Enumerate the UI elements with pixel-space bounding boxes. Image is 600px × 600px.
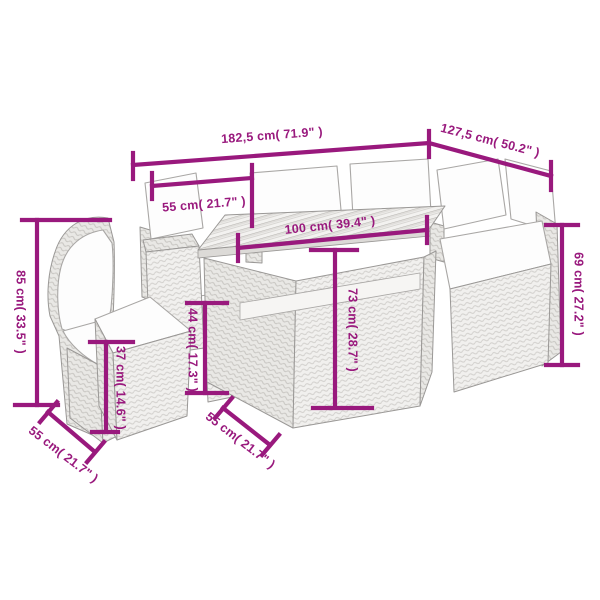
product-dimension-diagram: 182,5 cm( 71.9" ) 127,5 cm( 50.2" ) 55 c…	[0, 0, 600, 600]
diagram-canvas: 182,5 cm( 71.9" ) 127,5 cm( 50.2" ) 55 c…	[0, 0, 600, 600]
dim-seat-height-label: 44 cm( 17.3" )	[186, 308, 200, 392]
dim-backrest-height-label: 85 cm( 33.5" )	[14, 270, 28, 354]
dim-armrest-height-label: 69 cm( 27.2" )	[572, 252, 586, 336]
dim-table-height-label: 73 cm( 28.7" )	[346, 288, 360, 372]
dim-footstool-height-label: 37 cm( 14.6" )	[114, 346, 128, 430]
footstool	[95, 297, 191, 440]
